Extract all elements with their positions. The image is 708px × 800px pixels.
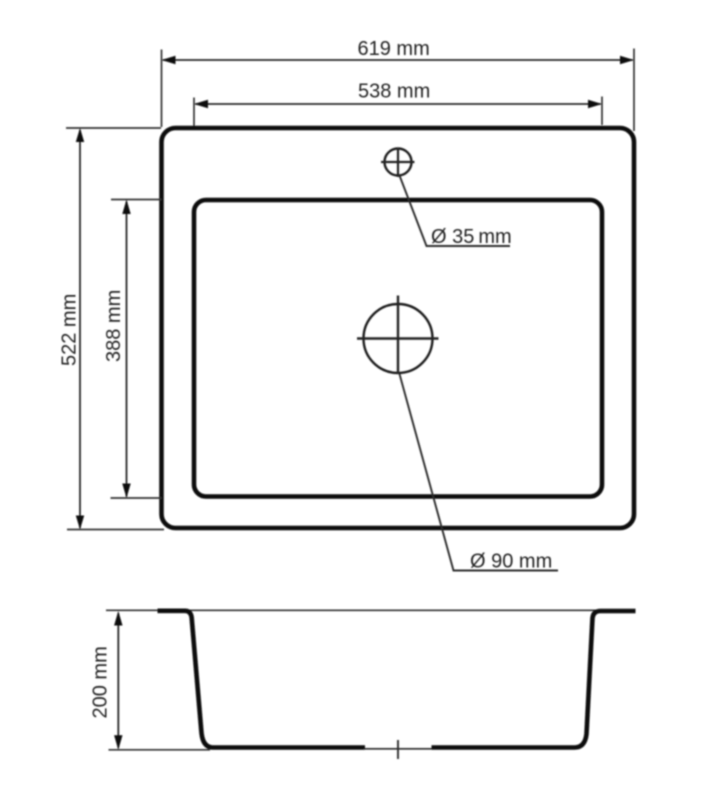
svg-text:200 mm: 200 mm: [90, 646, 112, 718]
svg-text:538 mm: 538 mm: [358, 81, 430, 103]
svg-text:522 mm: 522 mm: [59, 294, 81, 366]
svg-text:Ø 90 mm: Ø 90 mm: [470, 551, 552, 573]
svg-text:Ø 35 mm: Ø 35 mm: [431, 226, 512, 248]
svg-text:619 mm: 619 mm: [358, 38, 430, 60]
svg-text:388 mm: 388 mm: [103, 290, 125, 362]
